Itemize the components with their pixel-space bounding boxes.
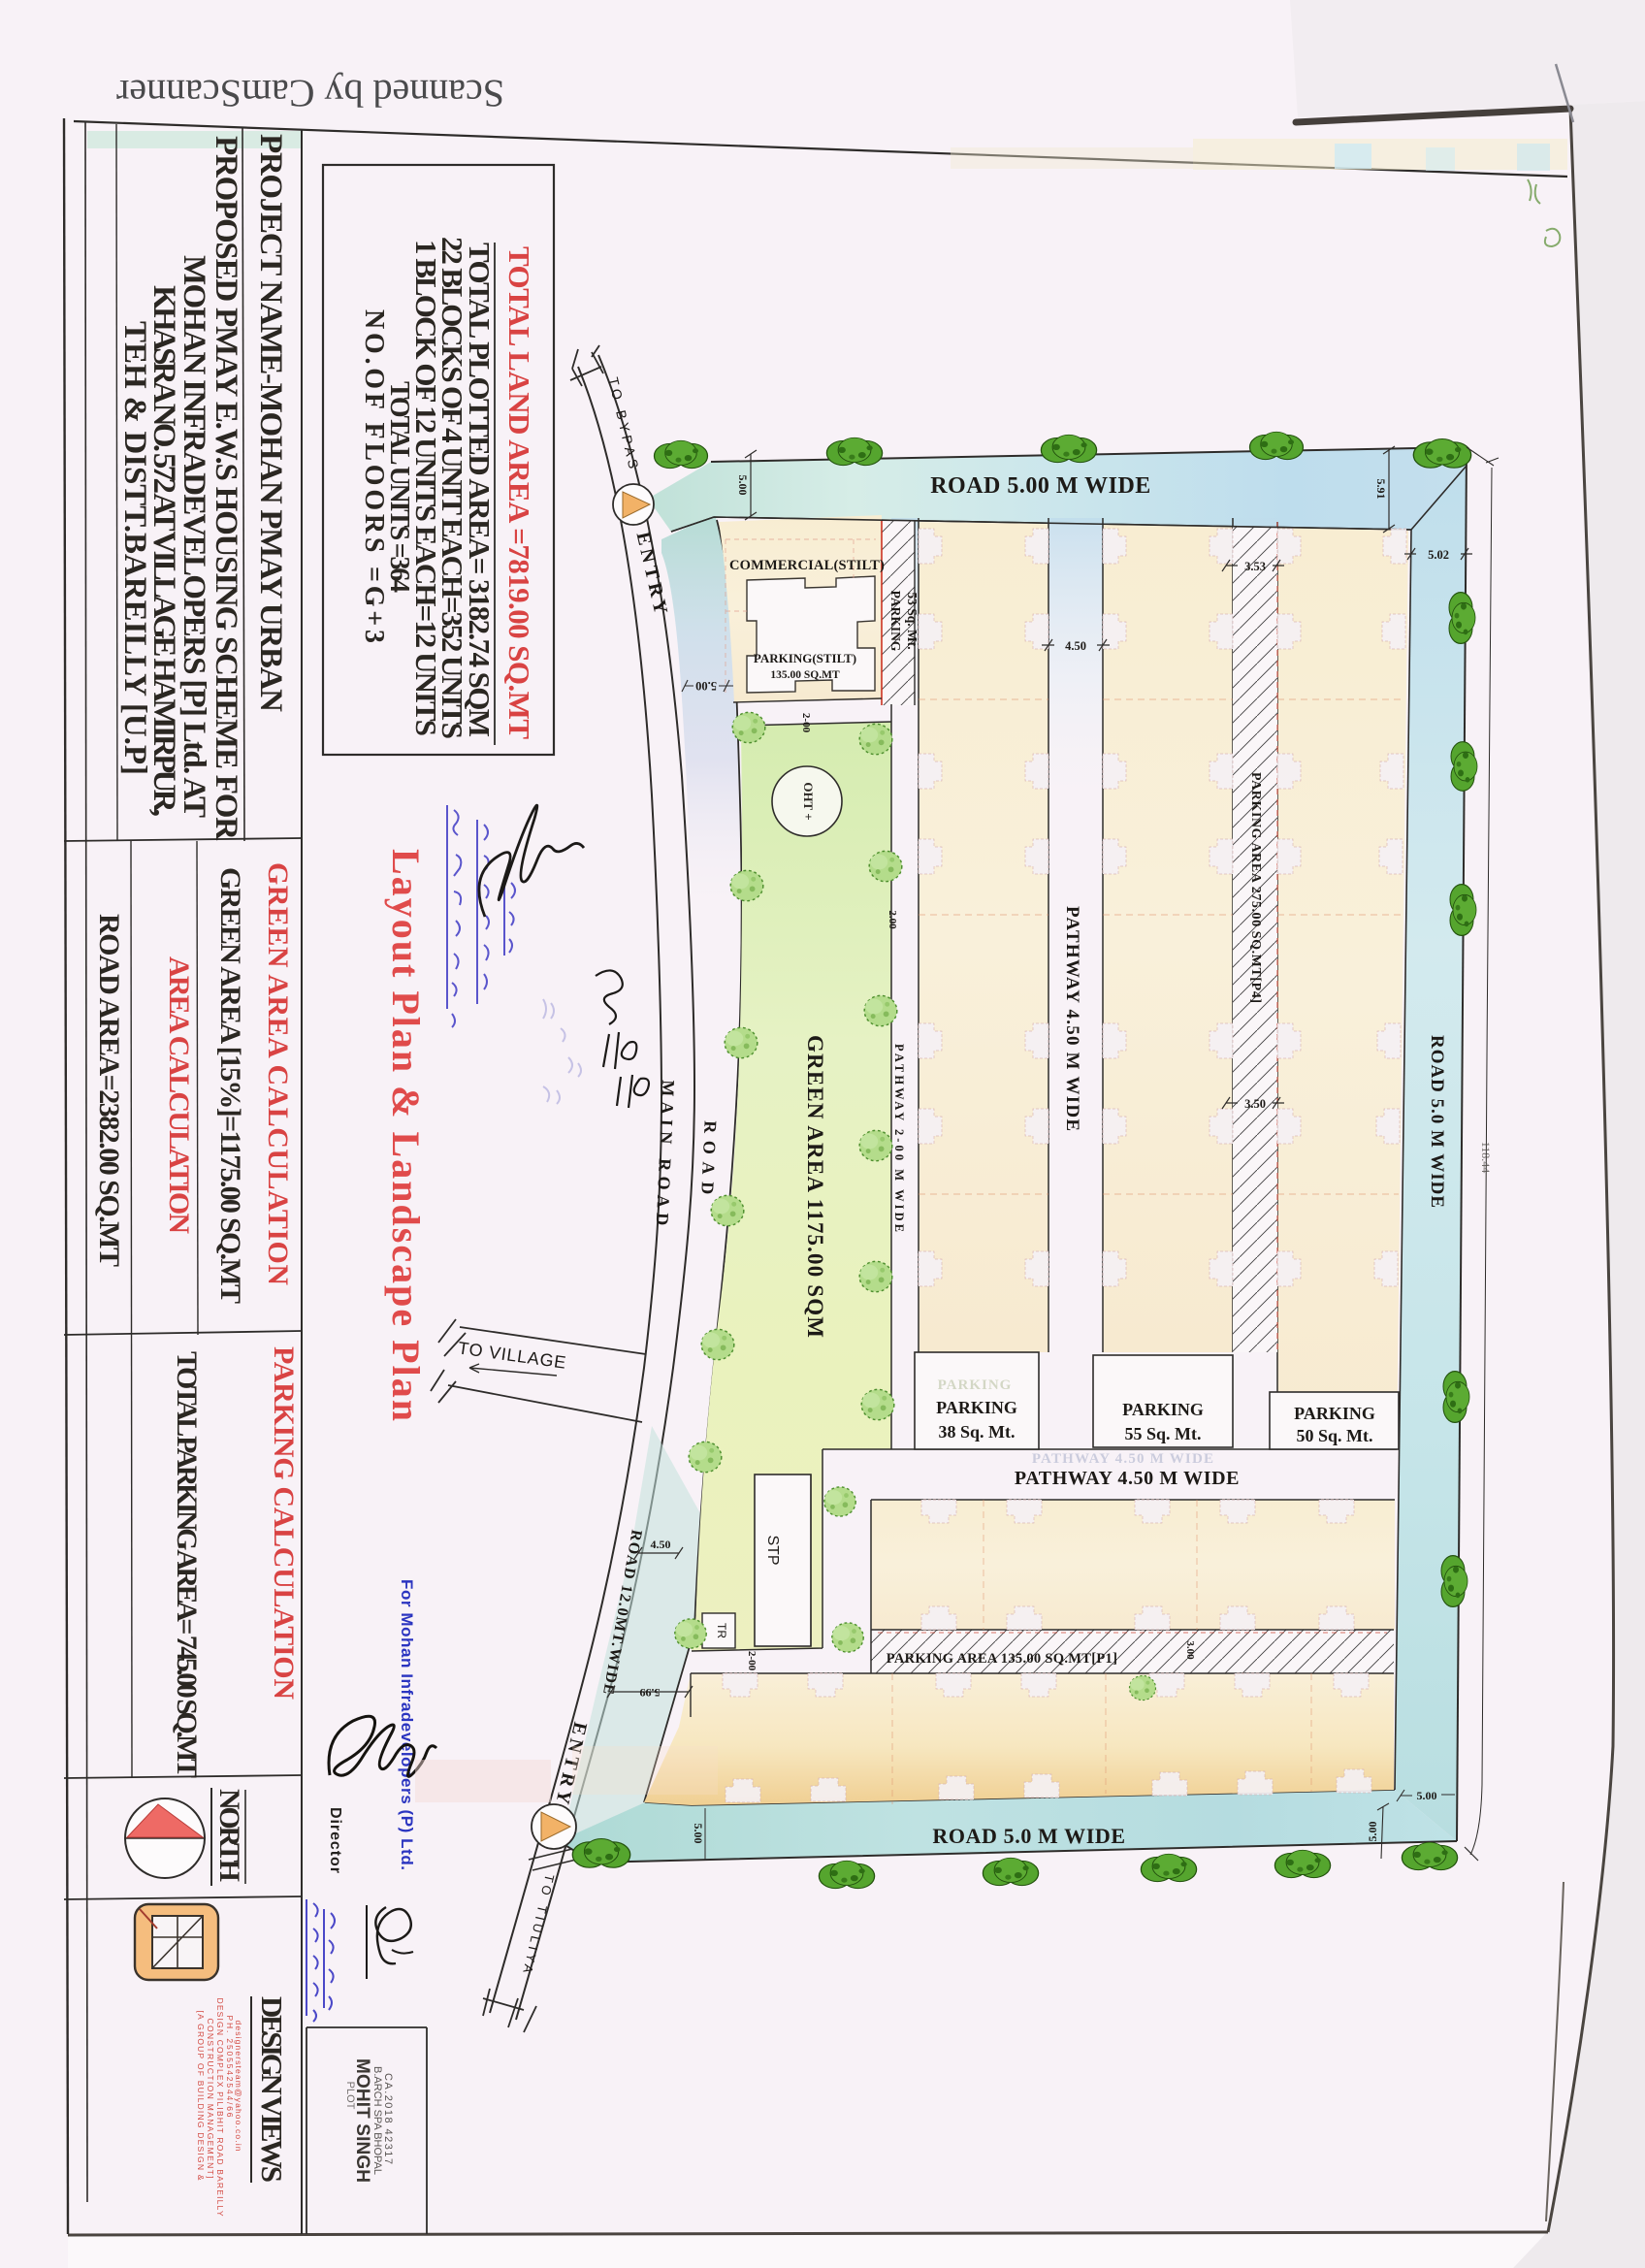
svg-text:PH. 2505542544/66: PH. 2505542544/66 <box>225 2016 235 2118</box>
svg-text:ROAD 5.0 M WIDE: ROAD 5.0 M WIDE <box>932 1824 1125 1848</box>
svg-text:4.50: 4.50 <box>1065 639 1086 653</box>
svg-text:2-00: 2-00 <box>746 1651 758 1671</box>
svg-text:PARKING: PARKING <box>1294 1404 1375 1423</box>
svg-text:Director: Director <box>327 1807 343 1873</box>
svg-text:PARKING: PARKING <box>1122 1400 1204 1419</box>
svg-text:118.44: 118.44 <box>1479 1142 1493 1174</box>
svg-text:TOTAL LAND AREA =7819.00 SQ.MT: TOTAL LAND AREA =7819.00 SQ.MT <box>502 246 536 739</box>
svg-text:[A GROUP OF BUILDING DESIGN &: [A GROUP OF BUILDING DESIGN & <box>196 2011 206 2181</box>
svg-text:TEH & DISTT.BAREILLY [U.P]: TEH & DISTT.BAREILLY [U.P] <box>117 321 152 775</box>
svg-text:MOHIT SINGH: MOHIT SINGH <box>352 2058 372 2183</box>
svg-text:5.00: 5.00 <box>1366 1822 1379 1842</box>
svg-text:GREEN AREA CALCULATION: GREEN AREA CALCULATION <box>262 862 294 1285</box>
svg-text:CONSTRUCTION MANAGEMENT]: CONSTRUCTION MANAGEMENT] <box>206 2019 215 2179</box>
svg-text:For Mohan Infradevelopers (P): For Mohan Infradevelopers (P) Ltd. <box>398 1579 416 1870</box>
svg-text:B.ARCH SPA BHOPAL: B.ARCH SPA BHOPAL <box>371 2066 383 2175</box>
svg-text:COMMERCIAL(STILT): COMMERCIAL(STILT) <box>729 558 885 573</box>
svg-text:ROAD 5.00 M WIDE: ROAD 5.00 M WIDE <box>930 473 1151 499</box>
svg-text:TOTAL PARKING AREA= 745.00 SQ: TOTAL PARKING AREA= 745.00 SQ.MT <box>171 1351 203 1778</box>
svg-text:PATHWAY 4.50 M WIDE: PATHWAY 4.50 M WIDE <box>1062 906 1082 1131</box>
svg-text:5.00: 5.00 <box>1417 1789 1437 1802</box>
svg-text:50 Sq. Mt.: 50 Sq. Mt. <box>1296 1426 1372 1445</box>
svg-text:NO.OF FLOORS =G+3: NO.OF FLOORS =G+3 <box>359 309 389 643</box>
svg-text:ROAD 5.0 M WIDE: ROAD 5.0 M WIDE <box>1427 1035 1447 1208</box>
svg-text:4.50: 4.50 <box>651 1538 671 1551</box>
svg-text:5.99: 5.99 <box>640 1686 661 1700</box>
svg-text:PARKING AREA 275.00 SQ.MT[P4]: PARKING AREA 275.00 SQ.MT[P4] <box>1248 772 1263 1003</box>
svg-text:5.00: 5.00 <box>736 475 750 496</box>
svg-text:55 Sq. Mt.: 55 Sq. Mt. <box>1124 1424 1201 1443</box>
svg-text:5.91: 5.91 <box>1374 479 1388 500</box>
svg-text:PROPOSED PMAY E.W.S HOUSING SC: PROPOSED PMAY E.W.S HOUSING SCHEME FOR <box>209 136 243 841</box>
svg-text:PATHWAY 4.50 M WIDE: PATHWAY 4.50 M WIDE <box>1015 1468 1240 1489</box>
svg-text:DESIGN COMPLEX PILIBHIT ROAD B: DESIGN COMPLEX PILIBHIT ROAD BAREILLY <box>215 1998 225 2217</box>
svg-text:5.00: 5.00 <box>695 679 717 693</box>
svg-text:3.53: 3.53 <box>1244 560 1266 573</box>
svg-text:PROJECT NAME-MOHAN PMAY URBAN: PROJECT NAME-MOHAN PMAY URBAN <box>253 134 288 712</box>
svg-text:5.02: 5.02 <box>1428 548 1449 562</box>
svg-text:PARKING: PARKING <box>936 1398 1017 1417</box>
svg-text:DESIGN VIEWS: DESIGN VIEWS <box>255 1996 289 2183</box>
svg-text:PARKING CALCULATION: PARKING CALCULATION <box>268 1346 300 1700</box>
svg-text:GREEN AREA [15%]=1175.00 SQ.MT: GREEN AREA [15%]=1175.00 SQ.MT <box>214 867 246 1304</box>
svg-text:PARKING: PARKING <box>938 1377 1013 1393</box>
svg-text:GREEN AREA 1175.00 SQM: GREEN AREA 1175.00 SQM <box>803 1035 827 1338</box>
svg-text:135.00 SQ.MT: 135.00 SQ.MT <box>770 669 840 681</box>
svg-text:CA.2018 42317: CA.2018 42317 <box>382 2073 394 2164</box>
svg-text:53 Sq. Mt.: 53 Sq. Mt. <box>905 592 919 649</box>
svg-text:AREA CALCULATION: AREA CALCULATION <box>163 956 195 1234</box>
svg-text:OHT +: OHT + <box>801 782 816 820</box>
svg-text:NORTH: NORTH <box>213 1789 245 1882</box>
svg-text:PARKING: PARKING <box>888 591 903 652</box>
svg-text:2-00: 2-00 <box>800 713 812 733</box>
svg-text:5.00: 5.00 <box>692 1824 705 1844</box>
svg-text:TR: TR <box>715 1623 728 1638</box>
svg-text:38 Sq. Mt.: 38 Sq. Mt. <box>938 1422 1015 1442</box>
svg-text:2.00: 2.00 <box>887 910 898 929</box>
svg-text:3.50: 3.50 <box>1244 1097 1266 1111</box>
svg-text:Scanned by CamScanner: Scanned by CamScanner <box>116 72 504 115</box>
svg-text:3.00: 3.00 <box>1184 1640 1196 1660</box>
svg-text:PATHWAY 4.50 M WIDE: PATHWAY 4.50 M WIDE <box>1032 1451 1214 1467</box>
svg-text:PARKING AREA 135.00 SQ.MT[P1]: PARKING AREA 135.00 SQ.MT[P1] <box>887 1651 1117 1667</box>
svg-text:designersteam@yahoo.co.in: designersteam@yahoo.co.in <box>234 2021 243 2152</box>
svg-text:STP: STP <box>764 1535 781 1565</box>
svg-text:PATHWAY 2-00 M WIDE: PATHWAY 2-00 M WIDE <box>892 1044 906 1232</box>
svg-text:PARKING(STILT): PARKING(STILT) <box>754 651 856 665</box>
svg-text:ROAD AREA=2382.00 SQ.MT: ROAD AREA=2382.00 SQ.MT <box>93 914 125 1267</box>
svg-text:Layout Plan & Landscape Plan: Layout Plan & Landscape Plan <box>384 849 428 1421</box>
